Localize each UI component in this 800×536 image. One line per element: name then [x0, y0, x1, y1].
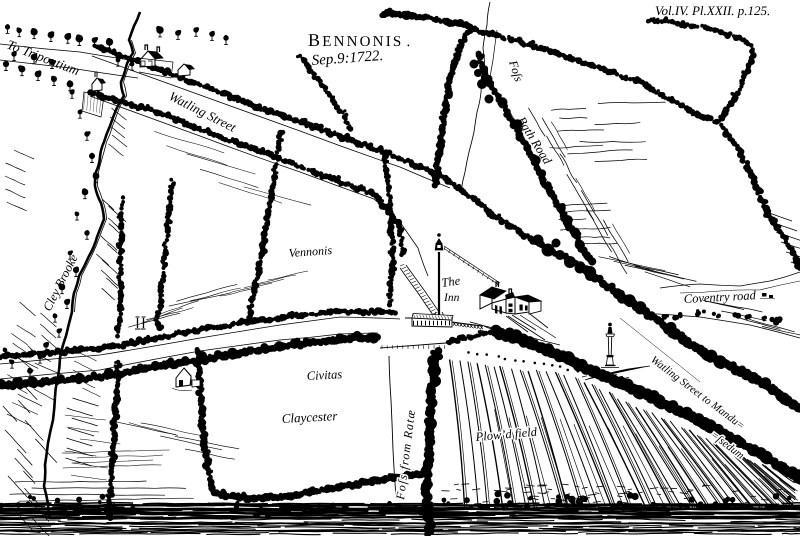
- svg-text:BENNONIS.: BENNONIS.: [308, 30, 412, 50]
- svg-text:Sep.9:1722.: Sep.9:1722.: [311, 48, 384, 69]
- svg-text:Civitas: Civitas: [306, 367, 342, 383]
- svg-text:Coventry road: Coventry road: [683, 288, 756, 306]
- svg-text:Plow’d field: Plow’d field: [474, 425, 538, 444]
- svg-text:Vol.IV. Pl.XXII. p.125.: Vol.IV. Pl.XXII. p.125.: [655, 3, 770, 18]
- svg-text:Inn: Inn: [443, 292, 460, 304]
- svg-text:Claycester: Claycester: [281, 408, 338, 426]
- svg-text:To Tripontium: To Tripontium: [5, 37, 82, 78]
- svg-text:Vennonis: Vennonis: [288, 243, 333, 260]
- svg-text:Foſs: Foſs: [506, 58, 526, 84]
- svg-text:Foſs from Ratæ: Foſs from Ratæ: [393, 408, 418, 501]
- svg-text:The: The: [440, 273, 461, 290]
